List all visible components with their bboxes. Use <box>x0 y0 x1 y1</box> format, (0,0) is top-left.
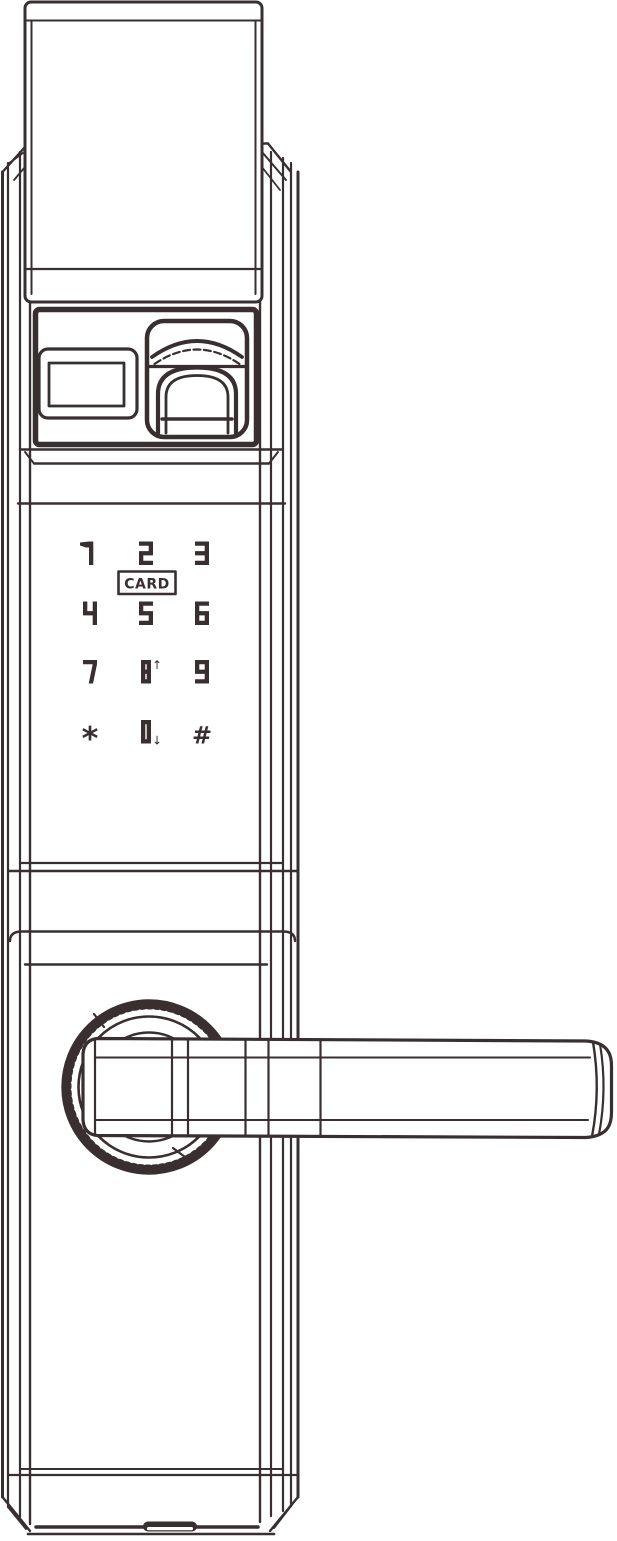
key-hash[interactable]: # <box>192 722 212 750</box>
fingerprint-reader[interactable] <box>147 321 247 437</box>
smart-lock-line-drawing: ↑*↓# CARD <box>0 0 617 1541</box>
handle-lever[interactable] <box>83 1039 612 1138</box>
fingerprint-window-outer <box>158 368 236 434</box>
key-3[interactable] <box>195 542 209 566</box>
svg-text:*: * <box>82 720 99 758</box>
svg-text:#: # <box>192 722 212 750</box>
key-6[interactable] <box>195 602 209 626</box>
key-1[interactable] <box>80 542 93 566</box>
card-label: CARD <box>124 577 170 593</box>
sensor-panel <box>36 310 257 445</box>
key-star[interactable]: * <box>82 720 99 758</box>
door-handle[interactable] <box>63 1001 612 1173</box>
fingerprint-window-inner <box>166 376 228 434</box>
key-8[interactable]: ↑ <box>141 658 162 684</box>
keypad[interactable]: ↑*↓# CARD <box>80 542 212 758</box>
key-0[interactable]: ↓ <box>141 720 162 748</box>
top-cover <box>25 2 262 302</box>
fingerprint-cover-inner-arc <box>155 350 240 365</box>
down-arrow-icon: ↓ <box>152 734 162 748</box>
card-reader-zone[interactable]: CARD <box>119 572 176 595</box>
key-5[interactable] <box>139 602 153 626</box>
key-2[interactable] <box>139 542 153 566</box>
display-screen <box>39 349 137 418</box>
charging-port <box>143 1522 197 1532</box>
key-4[interactable] <box>83 602 97 626</box>
key-9[interactable] <box>195 660 209 684</box>
key-7[interactable] <box>83 660 97 684</box>
up-arrow-icon: ↑ <box>152 658 162 672</box>
lock-body-outline <box>3 144 299 1535</box>
